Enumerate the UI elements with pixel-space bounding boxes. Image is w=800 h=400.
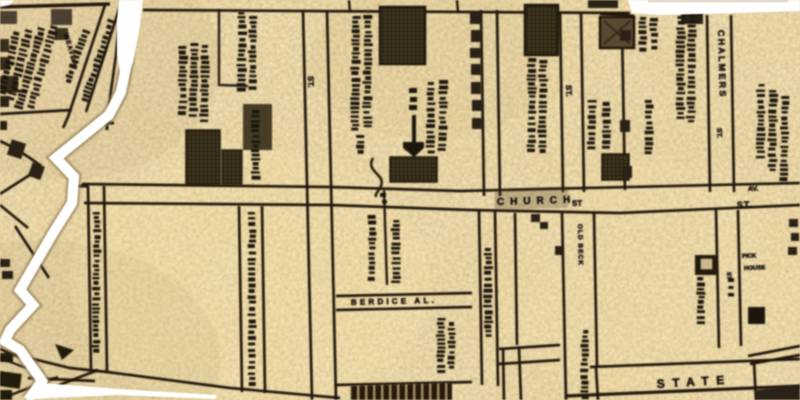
svg-text:PICK: PICK	[742, 253, 757, 260]
svg-text:ST.: ST.	[564, 85, 573, 97]
svg-text:ST.: ST.	[715, 128, 722, 138]
svg-text:OLD BECK: OLD BECK	[576, 224, 584, 266]
svg-text:AV.: AV.	[748, 186, 759, 193]
svg-text:CHALMERS: CHALMERS	[716, 30, 728, 99]
svg-text:ST.: ST.	[306, 76, 315, 88]
svg-text:HOUSE: HOUSE	[744, 265, 766, 272]
svg-text:ST.: ST.	[737, 199, 753, 210]
